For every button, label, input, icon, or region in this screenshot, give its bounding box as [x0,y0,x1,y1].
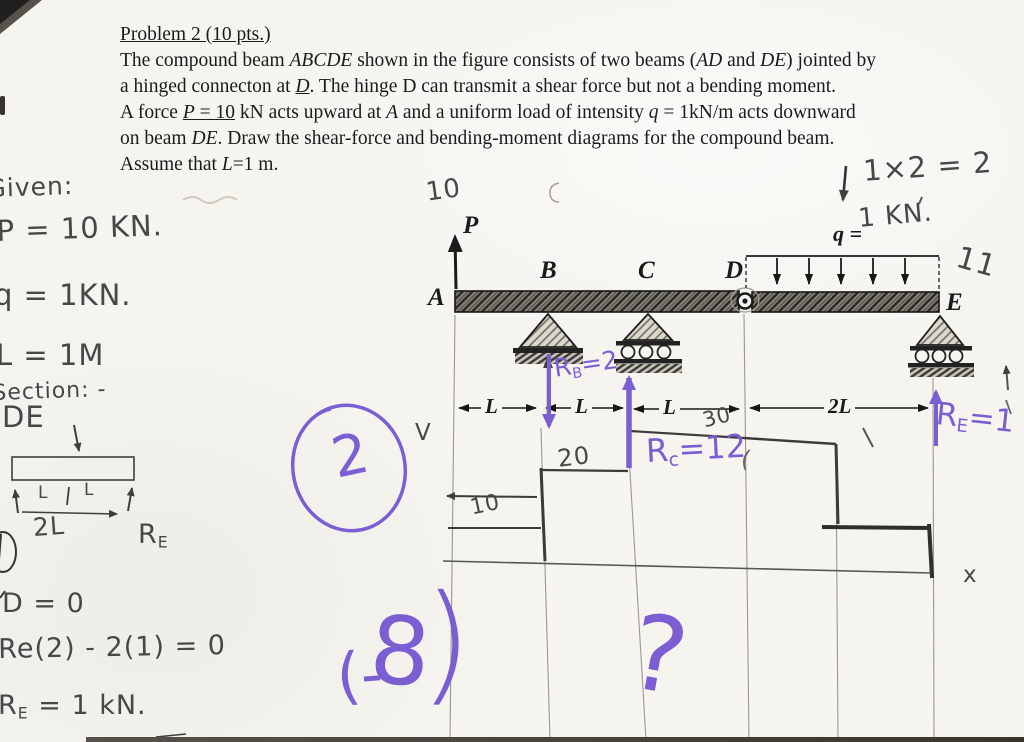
dimension-lines [459,408,928,409]
problem-line: The compound beam ABCDE shown in the fig… [120,48,992,74]
scan-bottom-edge [86,737,1024,742]
label-P: P [463,212,478,240]
problem-line: on beam DE. Draw the shear-force and ben… [120,126,992,152]
hw-sketch-2L: 2L [32,511,66,542]
scan-edge-mark [0,96,5,115]
faint-pencil-c [550,183,559,202]
purple-re: RE=1 [934,396,1016,442]
hw-p-value: 10 [424,173,463,208]
hw-q-eq: q = 1KN. [0,278,132,312]
hw-de: DE [2,400,45,434]
dim-L1: L [481,394,502,419]
p-force-arrow [455,237,456,289]
hw-re-calc: Re(2) - 2(1) = 0 [0,630,226,665]
label-E: E [946,289,963,317]
problem-line: A force P = 10 kN acts upward at A and a… [120,100,992,126]
scanned-exam-page: Problem 2 (10 pts.) The compound beam AB… [0,0,1024,742]
hw-v20: 20 [556,441,592,473]
label-B: B [540,257,557,285]
faint-scribble [183,197,237,203]
dim-2L: 2L [824,394,855,419]
problem-title: Problem 2 (10 pts.) [120,22,992,48]
support-roller-E [908,316,974,377]
hw-sketch-RE: RE [138,519,169,551]
purple-rc: Rc=12 [645,427,747,472]
hw-x-axis: x [963,562,978,588]
hw-v-axis: V [415,420,432,446]
label-A: A [428,284,445,312]
label-D: D [725,257,743,285]
pencil-up-arrow-right-edge [1006,366,1008,390]
dim-L2: L [571,394,592,419]
dim-L3: L [659,395,680,420]
problem-line: a hinged connecton at D. The hinge D can… [120,74,992,100]
hw-sketch-L-right: L [84,480,94,500]
hw-moment-eq: D = 0 [2,588,85,619]
hw-re-value: RE = 1 kN. [0,690,147,722]
hw-given: Given: [0,171,74,203]
beam [455,237,939,312]
hw-l-eq: L = 1M [0,338,104,372]
hw-sketch-L-left: L [38,483,48,503]
label-C: C [638,257,655,285]
distributed-load [746,256,939,290]
hw-p-eq: P = 10 KN. [0,208,163,248]
support-roller-C [614,314,682,373]
label-q: q = [833,221,862,247]
scan-corner-dark [0,0,30,24]
purple-neg8-close: ) [419,566,475,720]
